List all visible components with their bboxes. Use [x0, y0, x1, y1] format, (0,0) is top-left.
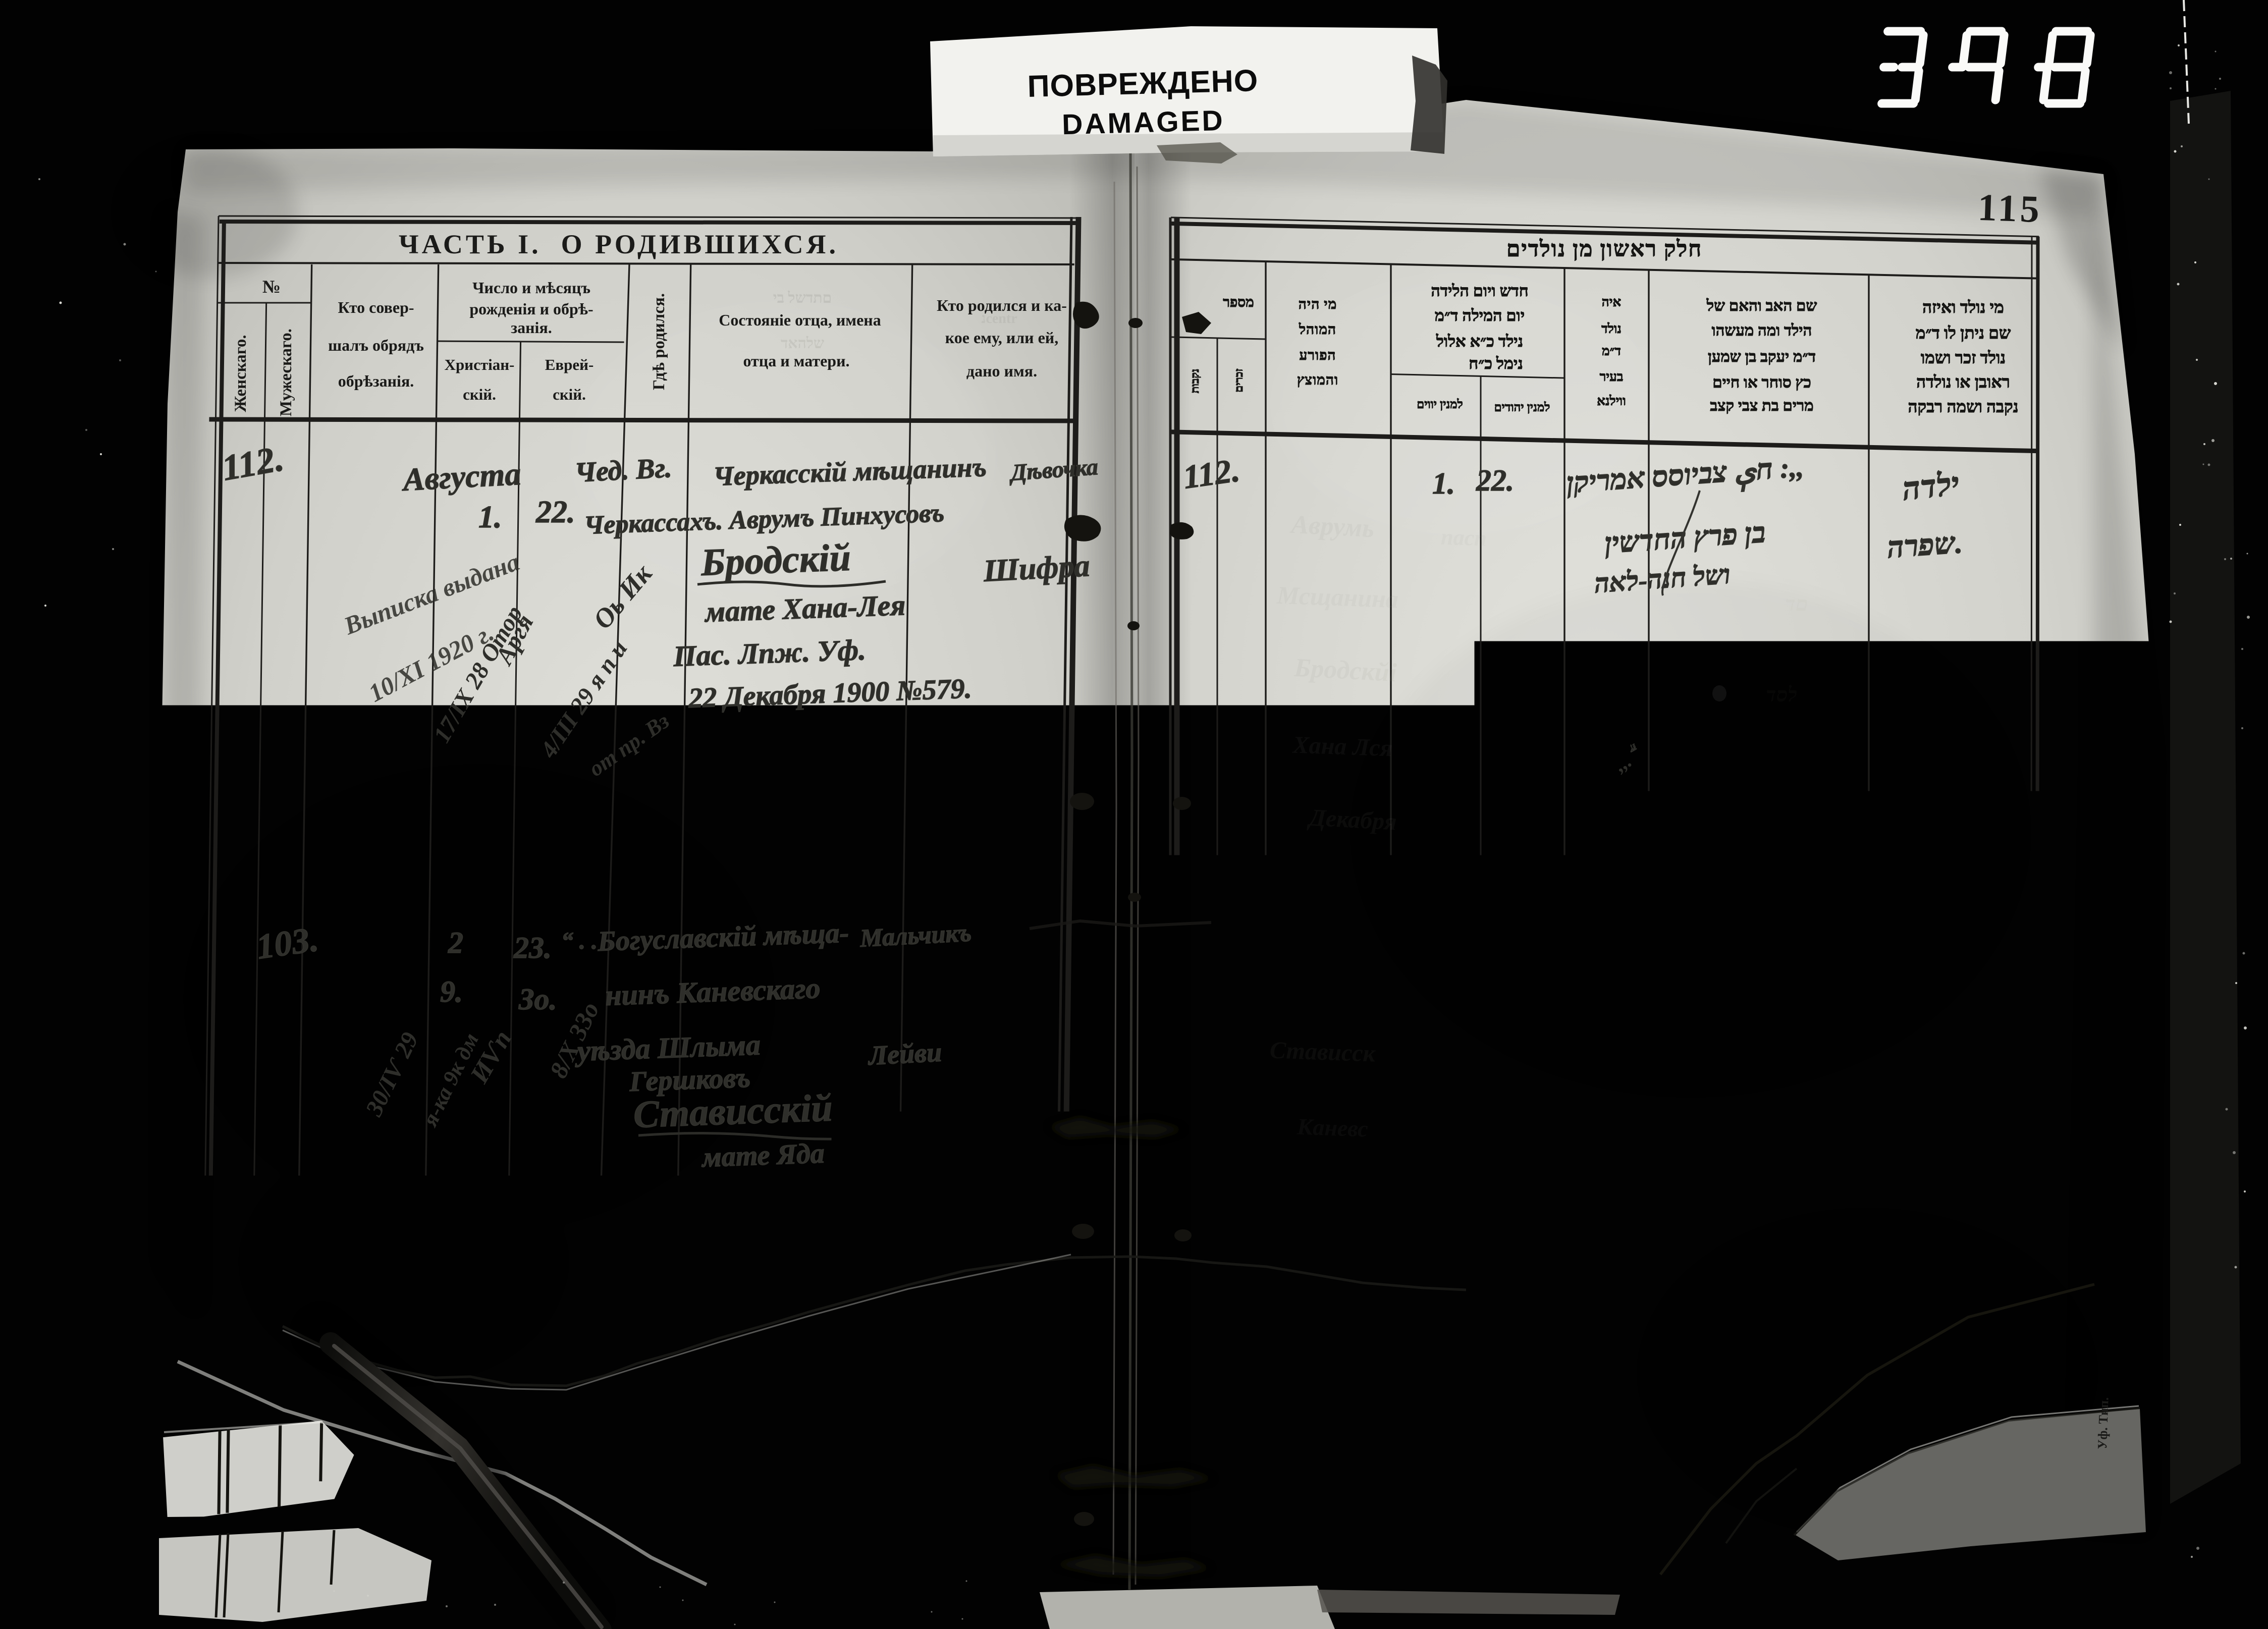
svg-text:שלהאד: שלהאד	[781, 335, 824, 352]
svg-text:22.: 22.	[535, 495, 575, 529]
svg-text:мате Хана-Лея: мате Хана-Лея	[704, 588, 906, 628]
svg-text:ЧАСТЬ I. О РОДИВШИХСЯ.: ЧАСТЬ I. О РОДИВШИХСЯ.	[399, 229, 839, 259]
svg-text:יום המילה ד״מ: יום המילה ד״מ	[1435, 306, 1525, 324]
svg-text:обрѣзанія.: обрѣзанія.	[338, 372, 414, 390]
svg-text:пасп: пасп	[1440, 524, 1487, 551]
svg-text:נcentr: נcentr	[981, 311, 1017, 327]
svg-text:למנין יווים: למנין יווים	[1417, 398, 1463, 411]
svg-text:мате Яда: мате Яда	[700, 1138, 825, 1173]
svg-text:1.: 1.	[478, 500, 502, 534]
svg-text:Стависскій: Стависскій	[633, 1087, 833, 1136]
svg-text:23: 23	[1481, 940, 1511, 973]
svg-text:9.: 9.	[1406, 983, 1428, 1016]
svg-text:кое ему, или ей,: кое ему, или ей,	[945, 329, 1058, 347]
svg-text:1.: 1.	[1432, 467, 1455, 500]
svg-text:חדש ויום הלידה: חדש ויום הלידה	[1431, 282, 1528, 300]
svg-text:ילדה: ילדה	[1901, 467, 1961, 507]
svg-text:נילד כ״א אלול: נילד כ״א אלול	[1436, 332, 1523, 350]
svg-text:Августа: Августа	[400, 456, 522, 498]
svg-text:“ . .: “ . .	[561, 928, 598, 954]
svg-text:והמוצץ: והמוצץ	[1297, 372, 1338, 388]
svg-text:112.: 112.	[1181, 452, 1242, 496]
svg-text:занія.: занія.	[511, 318, 552, 337]
svg-text:נולד: נולד	[1601, 321, 1622, 336]
svg-text:Шифра: Шифра	[982, 549, 1091, 588]
svg-text:Мальчикъ: Мальчикъ	[859, 918, 973, 952]
svg-text:Пас. Лпж. Уф.: Пас. Лпж. Уф.	[672, 633, 867, 673]
svg-text:נקבות: נקבות	[1189, 369, 1201, 394]
svg-text:ד״מ יעקב בן שמען: ד״מ יעקב בן שמען	[1708, 348, 1816, 365]
svg-text:2: 2	[448, 926, 463, 959]
svg-text:בעיר: בעיר	[1600, 369, 1624, 384]
svg-text:Аврумь: Аврумь	[1289, 510, 1375, 544]
svg-text:לסד: לסד	[1766, 683, 1797, 706]
svg-text:Уф. Тип.: Уф. Тип.	[2095, 1397, 2112, 1449]
svg-text:Еврей-: Еврей-	[545, 356, 594, 373]
svg-text:9.: 9.	[440, 975, 463, 1008]
svg-text:23.: 23.	[513, 931, 552, 964]
svg-text:Женскаго.: Женскаго.	[232, 335, 250, 412]
svg-text:Гдѣ родился.: Гдѣ родился.	[650, 293, 668, 390]
svg-text:למנין יהודים: למנין יהודים	[1494, 401, 1550, 414]
svg-text:שם ניתן לו ד״מ: שם ניתן לו ד״מ	[1916, 324, 2011, 343]
svg-text:рожденія и обрѣ-: рожденія и обрѣ-	[469, 300, 593, 318]
svg-text:Бродскйі: Бродскйі	[1293, 654, 1397, 688]
svg-text:הילד ומה מעשהו: הילד ומה מעשהו	[1712, 321, 1812, 339]
svg-text:скій.: скій.	[553, 386, 586, 403]
svg-text:שפרה.: שפרה.	[1886, 526, 1963, 564]
svg-text:ד״מ: ד״מ	[1602, 344, 1621, 358]
svg-text:נקבה ושמה רבקה: נקבה ושמה רבקה	[1908, 398, 2019, 416]
svg-text:הפורע: הפורע	[1299, 348, 1336, 363]
svg-text:Бродскій: Бродскій	[700, 536, 851, 584]
svg-text:Стависск: Стависск	[1269, 1037, 1377, 1067]
svg-text:מי היה: מי היה	[1299, 297, 1337, 312]
svg-text:скій.: скій.	[463, 386, 496, 403]
svg-text:шалъ обрядъ: шалъ обрядъ	[328, 336, 424, 354]
svg-text:ראובן או נולדה: ראובן או נולדה	[1916, 373, 2010, 392]
svg-text:לے: לے	[1926, 918, 1971, 965]
svg-text:איה: איה	[1602, 295, 1621, 309]
svg-text:Мсщанина: Мсщанина	[1276, 581, 1399, 613]
svg-text:שם האב והאם של: שם האב והאם של	[1706, 297, 1817, 314]
svg-text:Состояніе отца, имена: Состояніе отца, имена	[719, 311, 881, 329]
svg-text:Лейви: Лейви	[867, 1037, 942, 1071]
svg-text:ווילנא: ווילנא	[1597, 394, 1626, 408]
svg-text:№: №	[262, 277, 281, 297]
svg-text:Кто совер-: Кто совер-	[338, 298, 414, 316]
svg-text:Декабря: Декабря	[1307, 804, 1397, 835]
svg-text:Хана Лся: Хана Лся	[1291, 732, 1393, 762]
svg-text:отца и матери.: отца и матери.	[743, 352, 849, 370]
svg-text:זכרים: זכרים	[1232, 368, 1245, 392]
svg-text:כץ סוחר או חיים: כץ סוחר או חיים	[1712, 373, 1811, 391]
svg-text:מרים בת צבי קצב: מרים בת צבי קצב	[1710, 397, 1813, 414]
svg-text:םד: םד	[1785, 592, 1808, 615]
svg-text:מספר: מספר	[1223, 295, 1254, 310]
svg-text:DAMAGED: DAMAGED	[1061, 104, 1225, 141]
svg-text:םתדשל בי: םתדשל בי	[773, 290, 832, 306]
svg-text:נולד זכר ושמו: נולד זכר ושמו	[1921, 349, 2006, 367]
svg-text:Чед. Вг.: Чед. Вг.	[574, 452, 672, 488]
svg-text:22.: 22.	[1476, 464, 1514, 497]
svg-text:Число и мѣсяцъ: Число и мѣсяцъ	[472, 279, 590, 297]
svg-text:дано имя.: дано имя.	[966, 362, 1037, 380]
svg-text:ПОВРЕЖДЕНО: ПОВРЕЖДЕНО	[1027, 63, 1259, 103]
svg-text:נימל כ״ח: נימל כ״ח	[1469, 354, 1523, 372]
svg-text:115: 115	[1977, 186, 2043, 231]
svg-text:2: 2	[1409, 937, 1424, 969]
svg-text:Христіан-: Христіан-	[445, 356, 515, 373]
svg-text:Мужескаго.: Мужескаго.	[277, 329, 295, 416]
svg-text:מי נולד ואיזה: מי נולד ואיזה	[1922, 299, 2004, 317]
svg-text:Каневс: Каневс	[1296, 1114, 1368, 1142]
svg-text:уѣзда Шлыма: уѣзда Шлыма	[574, 1028, 761, 1067]
svg-text:המוהל: המוהל	[1299, 322, 1336, 338]
svg-text:חלק ראשון מן נולדים: חלק ראשון מן נולדים	[1506, 237, 1702, 261]
svg-text:Зо.: Зо.	[518, 983, 557, 1016]
svg-text:3.: 3.	[1484, 989, 1507, 1022]
